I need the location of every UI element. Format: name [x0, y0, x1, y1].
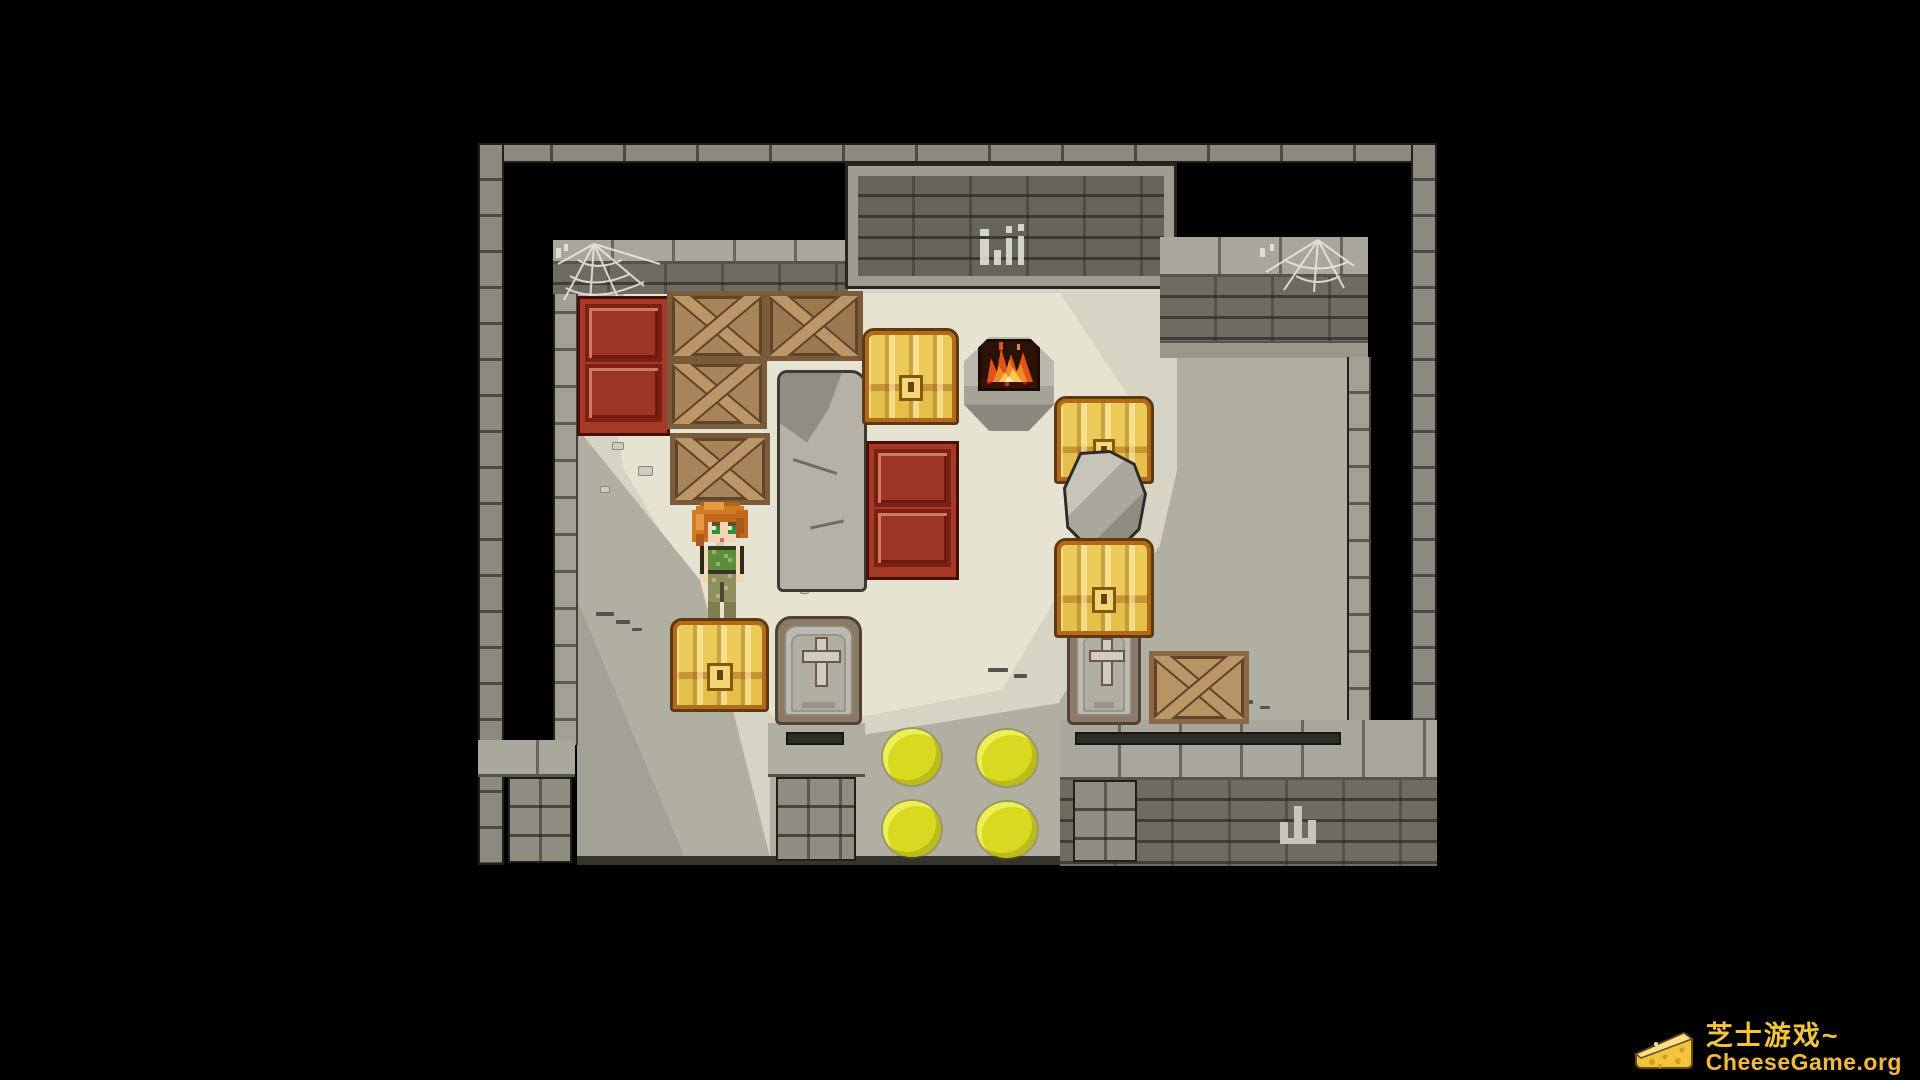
stone-slab [777, 370, 867, 592]
cheese-icon [1632, 1024, 1696, 1072]
wooden-crate [670, 433, 770, 505]
red-crate-stack-left [577, 296, 670, 436]
spider-web-icon [1256, 238, 1356, 294]
inner-wall-left [553, 240, 578, 745]
fire-icon [981, 342, 1037, 388]
wooden-crate [667, 359, 767, 429]
gold-chest [1054, 538, 1154, 638]
gold-chest [670, 618, 769, 712]
watermark: 芝士游戏~ CheeseGame.org [1632, 1022, 1902, 1074]
pressure-plate [883, 801, 941, 857]
coffin [775, 616, 862, 725]
floor-crack [1014, 674, 1027, 678]
wall-slot [786, 732, 844, 745]
cross-icon [1089, 650, 1125, 662]
player-character [684, 498, 756, 626]
cross-icon [1101, 638, 1113, 686]
inner-wall-top-center [845, 163, 1177, 289]
floor-crack [616, 620, 630, 624]
wooden-crate [1149, 651, 1249, 724]
game-viewport[interactable]: 芝士游戏~ CheeseGame.org [0, 0, 1920, 1080]
watermark-site: CheeseGame.org [1706, 1050, 1902, 1074]
pressure-plate [977, 730, 1037, 786]
spider-web-icon [556, 242, 676, 304]
wall-slot [1075, 732, 1341, 745]
gold-chest [862, 328, 959, 425]
cross-icon [802, 650, 841, 663]
floor-crack [632, 628, 642, 631]
wooden-crate [765, 291, 863, 361]
bottom-wall-left [478, 740, 575, 865]
pressure-plate [977, 802, 1037, 858]
floor-crack [1260, 706, 1270, 709]
wooden-crate [667, 291, 767, 361]
floor-crack [596, 612, 614, 616]
floor-pebble [612, 442, 624, 450]
pressure-plate [883, 729, 941, 785]
fire-brazier [964, 337, 1054, 431]
boulder [1063, 450, 1147, 550]
inner-wall-right [1347, 357, 1371, 721]
floor-pebble [600, 486, 610, 493]
watermark-brand: 芝士游戏~ [1706, 1022, 1902, 1050]
tomb-pedestal-left [768, 723, 865, 863]
red-crate-stack-center [866, 441, 959, 580]
floor-crack [988, 668, 1008, 672]
tomb-pedestal-right [1073, 780, 1137, 862]
floor-pebble [638, 466, 653, 476]
outer-wall-top [478, 143, 1437, 163]
